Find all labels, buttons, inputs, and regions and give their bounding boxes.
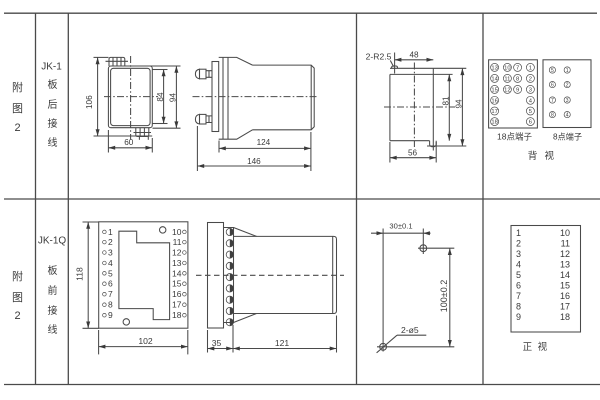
svg-text:10: 10 [504, 65, 510, 71]
svg-text:接: 接 [48, 304, 58, 317]
svg-text:16: 16 [491, 98, 497, 104]
svg-text:35: 35 [212, 338, 222, 348]
svg-text:5: 5 [516, 270, 521, 280]
svg-text:11: 11 [504, 76, 510, 82]
svg-text:板: 板 [48, 264, 58, 277]
svg-text:3: 3 [566, 98, 569, 104]
svg-text:7: 7 [516, 65, 519, 71]
svg-text:2: 2 [14, 310, 20, 322]
svg-text:12: 12 [172, 248, 182, 258]
svg-text:2: 2 [529, 76, 532, 82]
svg-text:9: 9 [108, 310, 113, 320]
svg-text:11: 11 [561, 238, 570, 248]
svg-text:5: 5 [551, 68, 554, 74]
svg-text:15: 15 [560, 280, 570, 290]
svg-text:附: 附 [12, 80, 23, 94]
svg-text:15: 15 [172, 279, 182, 289]
svg-text:16: 16 [560, 291, 570, 301]
svg-text:6: 6 [108, 279, 113, 289]
svg-text:9: 9 [516, 312, 521, 322]
svg-text:8: 8 [108, 300, 113, 310]
svg-text:7: 7 [516, 291, 521, 301]
svg-text:5: 5 [108, 268, 113, 278]
svg-text:JK-1Q: JK-1Q [38, 236, 67, 247]
svg-text:线: 线 [48, 323, 58, 336]
svg-text:12: 12 [560, 249, 570, 259]
svg-text:100±0.2: 100±0.2 [439, 280, 449, 312]
svg-text:14: 14 [491, 76, 498, 82]
svg-text:48: 48 [409, 51, 419, 60]
svg-text:146: 146 [247, 157, 261, 166]
svg-text:13: 13 [172, 258, 182, 268]
svg-text:1: 1 [566, 68, 569, 74]
svg-text:4: 4 [516, 259, 521, 269]
svg-text:6: 6 [551, 82, 554, 88]
svg-text:102: 102 [138, 336, 153, 346]
svg-text:8: 8 [551, 112, 554, 118]
svg-text:13: 13 [491, 65, 497, 71]
svg-text:118: 118 [75, 267, 85, 281]
svg-text:线: 线 [48, 136, 58, 149]
svg-text:18点端子: 18点端子 [497, 131, 532, 141]
svg-text:1: 1 [108, 227, 113, 237]
svg-text:5: 5 [529, 109, 532, 115]
svg-text:JK-1: JK-1 [41, 62, 62, 73]
svg-text:12: 12 [504, 87, 510, 93]
svg-text:14: 14 [560, 270, 570, 280]
svg-text:17: 17 [560, 301, 570, 311]
svg-text:2: 2 [516, 238, 521, 248]
svg-text:1: 1 [529, 65, 532, 71]
svg-text:16: 16 [172, 289, 182, 299]
svg-text:30±0.1: 30±0.1 [389, 222, 412, 231]
svg-text:11: 11 [173, 237, 182, 247]
svg-text:3: 3 [108, 248, 113, 258]
svg-text:2: 2 [566, 82, 569, 88]
svg-text:接: 接 [48, 117, 58, 130]
svg-text:17: 17 [491, 109, 497, 115]
svg-text:13: 13 [560, 259, 570, 269]
svg-text:4: 4 [529, 98, 533, 104]
svg-text:3: 3 [529, 87, 532, 93]
svg-text:8: 8 [516, 301, 521, 311]
svg-text:前: 前 [48, 284, 58, 297]
svg-text:106: 106 [85, 95, 94, 109]
svg-text:3: 3 [516, 249, 521, 259]
svg-text:9: 9 [516, 87, 519, 93]
svg-text:7: 7 [551, 98, 554, 104]
svg-text:17: 17 [172, 300, 182, 310]
svg-text:94: 94 [454, 99, 463, 109]
svg-text:1: 1 [516, 228, 521, 238]
svg-text:84: 84 [156, 92, 165, 102]
svg-text:81: 81 [441, 96, 450, 106]
svg-text:2: 2 [14, 122, 20, 134]
svg-text:后: 后 [48, 99, 58, 111]
svg-text:56: 56 [408, 148, 418, 157]
svg-text:正: 正 [523, 342, 533, 353]
svg-text:18: 18 [560, 312, 570, 322]
svg-text:2-ø5: 2-ø5 [401, 325, 419, 335]
svg-text:板: 板 [48, 78, 58, 91]
svg-text:8点端子: 8点端子 [553, 131, 582, 141]
svg-text:6: 6 [516, 280, 521, 290]
svg-text:10: 10 [172, 227, 182, 237]
svg-text:18: 18 [491, 120, 497, 126]
svg-text:60: 60 [124, 138, 134, 147]
svg-text:14: 14 [172, 268, 182, 278]
svg-text:4: 4 [566, 112, 569, 118]
svg-text:附: 附 [12, 269, 23, 283]
svg-text:7: 7 [108, 289, 113, 299]
svg-text:6: 6 [529, 120, 532, 126]
svg-text:18: 18 [172, 310, 182, 320]
svg-text:2: 2 [108, 237, 113, 247]
svg-text:10: 10 [560, 228, 570, 238]
svg-text:15: 15 [491, 87, 497, 93]
svg-text:124: 124 [257, 138, 271, 147]
svg-text:图: 图 [12, 102, 23, 115]
svg-text:94: 94 [168, 93, 177, 103]
svg-text:背: 背 [528, 150, 538, 162]
svg-text:8: 8 [516, 76, 519, 82]
svg-text:图: 图 [12, 291, 23, 304]
svg-text:视: 视 [544, 150, 554, 162]
svg-text:121: 121 [275, 338, 290, 348]
svg-text:视: 视 [538, 341, 548, 353]
svg-text:4: 4 [108, 258, 113, 268]
svg-text:2-R2.5: 2-R2.5 [366, 52, 392, 62]
